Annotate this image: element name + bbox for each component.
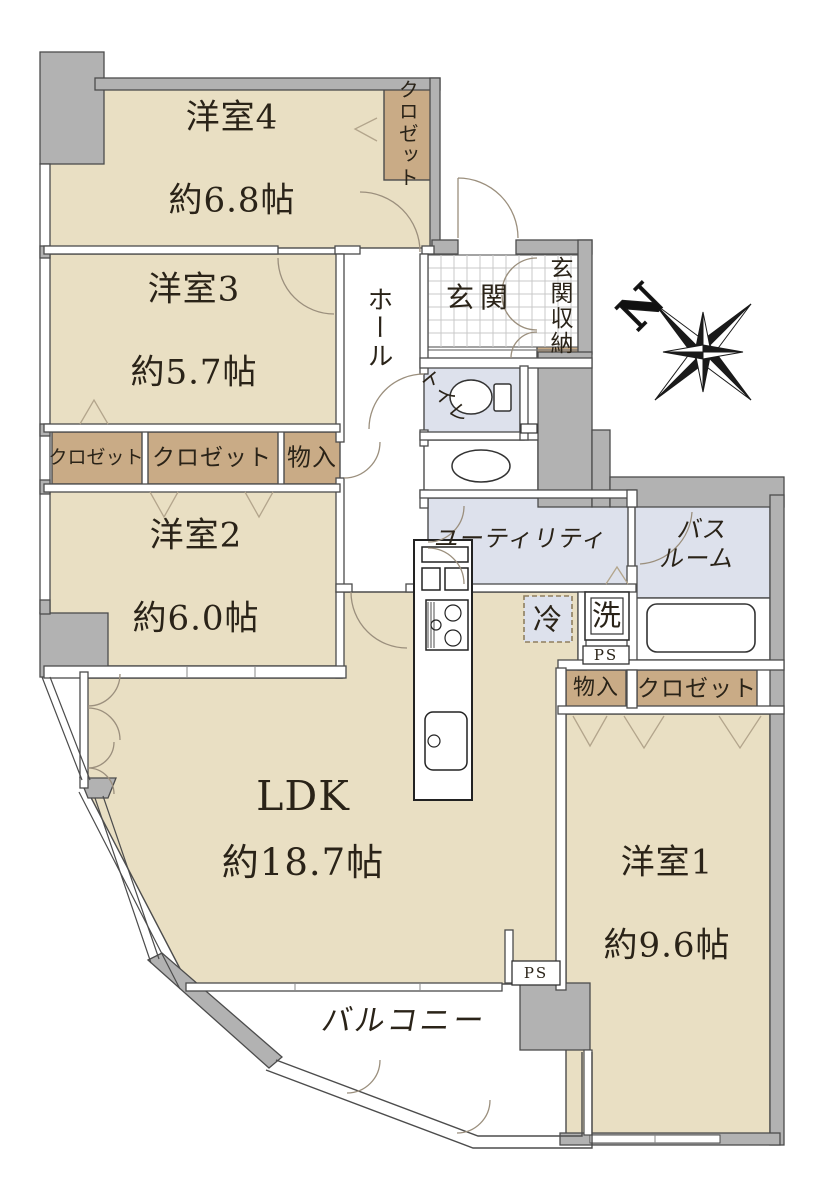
balcony-label: バルコニー: [319, 1004, 490, 1041]
genkan-storage-label: 玄関収納: [545, 256, 573, 356]
stove-icon: [426, 600, 468, 650]
room-name: 洋室2: [132, 516, 259, 557]
refrigerator-label: 冷: [533, 602, 563, 637]
room-size: 約6.0帖: [132, 599, 259, 640]
hall-label: ホール: [361, 286, 393, 370]
room-size: 約6.8帖: [168, 181, 295, 222]
monoire-door-arc: [344, 442, 380, 478]
compass-rose: N: [607, 273, 751, 400]
balcony-door-arcs: [347, 1060, 490, 1133]
room-label-youshitsu3: 洋室3 約5.7帖: [130, 228, 257, 435]
room-name: LDK: [222, 771, 384, 821]
room-name: 洋室1: [603, 843, 730, 884]
room-size: 約5.7帖: [130, 353, 257, 394]
floorplan: N 洋室4 約6.8帖 クロゼット 玄関 玄関収納 ホール 洋室3 約5.7帖 …: [0, 0, 840, 1200]
closet-y4-label: クロゼット: [395, 79, 419, 189]
washbasin-icon: [452, 450, 510, 482]
wall-segment: [584, 1050, 592, 1135]
bathtub-icon: [647, 604, 755, 652]
monoire-hall-label: 物入: [287, 443, 337, 472]
bathroom-label: バス ルーム: [658, 516, 743, 575]
room-size: 約9.6帖: [603, 926, 730, 967]
closet-left-small-label: クロゼット: [48, 446, 143, 469]
closet-left-large-label: クロゼット: [152, 444, 272, 472]
room-size: 約18.7帖: [222, 840, 384, 885]
balcony-railing: [266, 1052, 592, 1148]
kitchen-sink-icon: [425, 712, 467, 770]
washer-label: 洗: [592, 598, 622, 633]
entrance-door-arc: [458, 178, 518, 238]
room-label-youshitsu2: 洋室2 約6.0帖: [132, 474, 259, 681]
compass-north-label: N: [607, 273, 675, 341]
room-name: 洋室3: [130, 270, 257, 311]
genkan-label: 玄関: [446, 281, 514, 315]
room-label-ldk: LDK 約18.7帖: [222, 751, 384, 905]
closet-y1-label: クロゼット: [637, 675, 757, 703]
monoire-y1-label: 物入: [573, 676, 619, 703]
pipe-space-1-label: PS: [594, 646, 618, 664]
room-name: 洋室4: [168, 98, 295, 139]
pipe-space-2-label: PS: [524, 964, 548, 982]
room-label-youshitsu1: 洋室1 約9.6帖: [603, 801, 730, 1008]
utility-label: ユーティリティ: [432, 524, 609, 553]
